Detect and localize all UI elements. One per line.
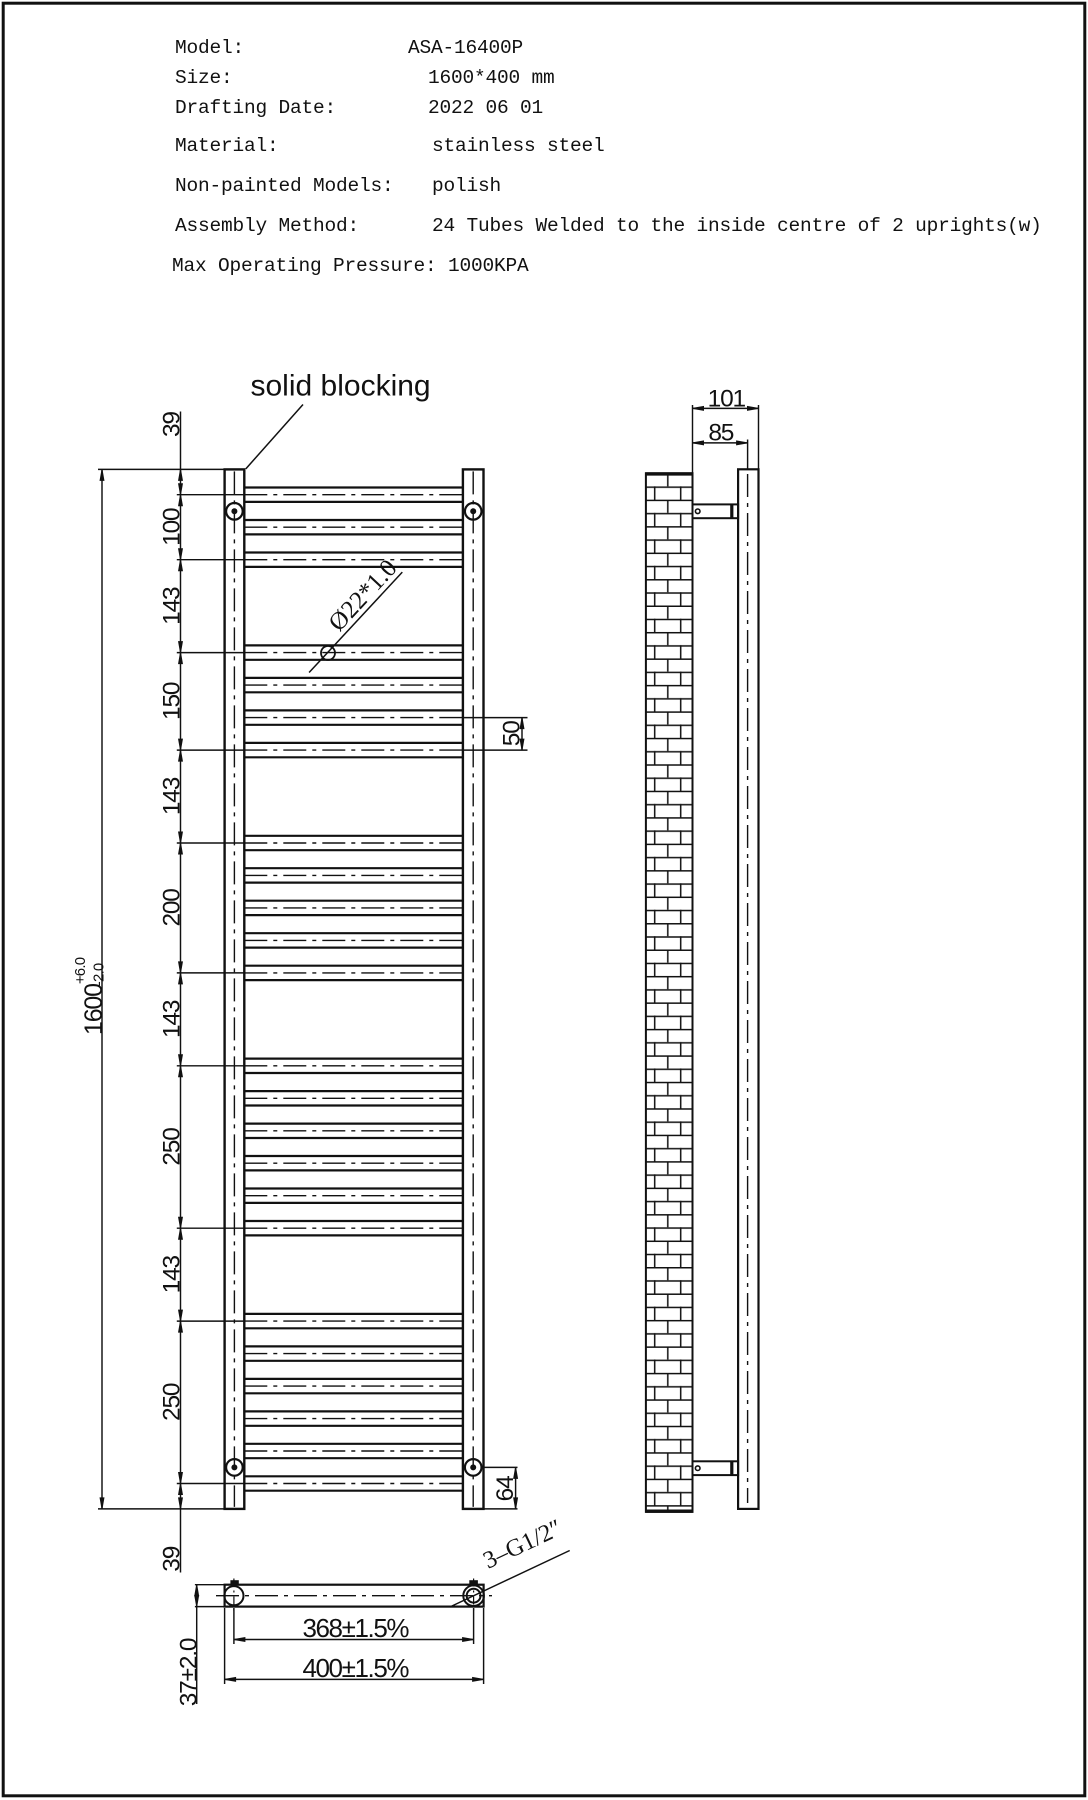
svg-text:ASA-16400P: ASA-16400P xyxy=(408,37,523,59)
svg-text:Drafting Date:: Drafting Date: xyxy=(175,97,336,119)
svg-text:143: 143 xyxy=(159,587,186,625)
svg-text:150: 150 xyxy=(159,682,186,720)
svg-text:Non-painted Models:: Non-painted Models: xyxy=(175,175,394,197)
svg-text:50: 50 xyxy=(499,721,526,746)
svg-text:143: 143 xyxy=(159,777,186,815)
svg-text:250: 250 xyxy=(159,1383,186,1421)
svg-text:solid blocking: solid blocking xyxy=(251,370,431,403)
svg-text:Size:: Size: xyxy=(175,67,233,89)
svg-text:200: 200 xyxy=(159,889,186,927)
svg-text:Max Operating Pressure: 1000KP: Max Operating Pressure: 1000KPA xyxy=(172,255,529,277)
svg-text:85: 85 xyxy=(708,419,733,446)
svg-text:stainless steel: stainless steel xyxy=(432,135,605,157)
svg-text:1600*400 mm: 1600*400 mm xyxy=(428,67,555,89)
svg-text:Assembly Method:: Assembly Method: xyxy=(175,215,359,237)
svg-text:3–G1/2″: 3–G1/2″ xyxy=(479,1514,566,1574)
svg-text:143: 143 xyxy=(159,1255,186,1293)
svg-text:37±2.0: 37±2.0 xyxy=(176,1638,203,1706)
svg-text:100: 100 xyxy=(159,508,186,546)
svg-text:400±1.5%: 400±1.5% xyxy=(302,1653,409,1683)
svg-text:polish: polish xyxy=(432,175,501,197)
svg-text:39: 39 xyxy=(159,412,186,437)
svg-text:64: 64 xyxy=(492,1476,519,1501)
svg-text:101: 101 xyxy=(708,385,746,412)
svg-text:1600+6.0-2.0: 1600+6.0-2.0 xyxy=(72,957,108,1035)
svg-text:Model:: Model: xyxy=(175,37,244,59)
svg-text:39: 39 xyxy=(159,1546,186,1571)
svg-text:143: 143 xyxy=(159,1000,186,1038)
svg-text:368±1.5%: 368±1.5% xyxy=(302,1613,409,1643)
svg-text:2022 06 01: 2022 06 01 xyxy=(428,97,543,119)
svg-text:Material:: Material: xyxy=(175,135,279,157)
svg-text:250: 250 xyxy=(159,1128,186,1166)
svg-text:24 Tubes Welded to the inside: 24 Tubes Welded to the inside centre of … xyxy=(432,215,1042,237)
